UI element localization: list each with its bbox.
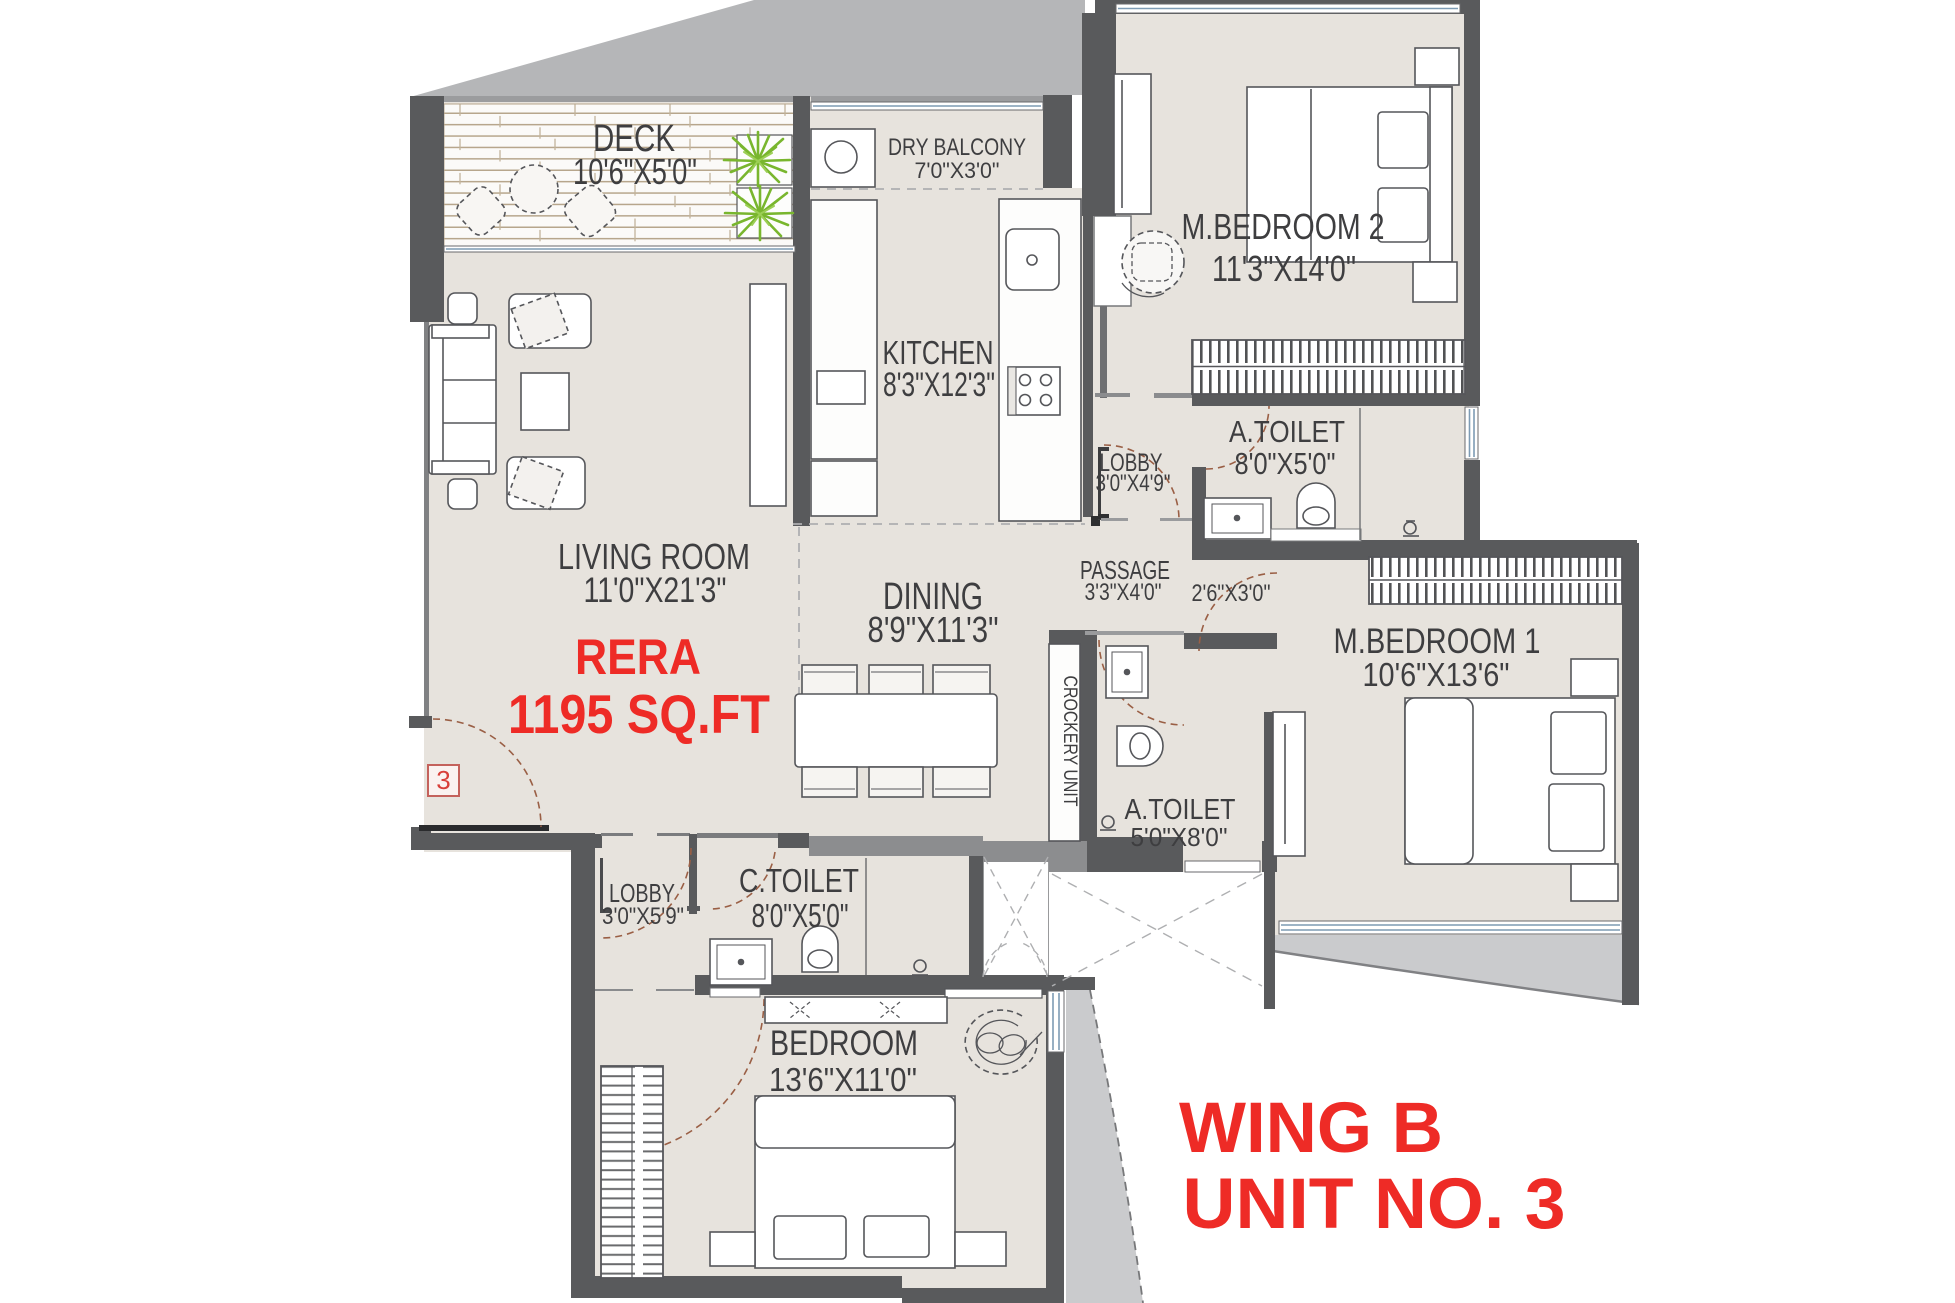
- svg-text:UNIT NO. 3: UNIT NO. 3: [1183, 1165, 1566, 1244]
- svg-text:11'3"X14'0": 11'3"X14'0": [1212, 248, 1356, 289]
- svg-text:8'9"X11'3": 8'9"X11'3": [868, 609, 999, 650]
- svg-text:8'0"X5'0": 8'0"X5'0": [1235, 446, 1336, 481]
- svg-text:3: 3: [436, 765, 450, 795]
- svg-text:8'0"X5'0": 8'0"X5'0": [752, 897, 849, 934]
- svg-text:7'0"X3'0": 7'0"X3'0": [915, 158, 1000, 183]
- svg-text:RERA: RERA: [575, 629, 701, 685]
- svg-text:DRY BALCONY: DRY BALCONY: [888, 134, 1026, 161]
- svg-text:2'6"X3'0": 2'6"X3'0": [1192, 580, 1271, 607]
- svg-text:13'6"X11'0": 13'6"X11'0": [769, 1061, 917, 1098]
- svg-text:10'6"X5'0": 10'6"X5'0": [573, 151, 697, 192]
- svg-text:5'0"X8'0": 5'0"X8'0": [1131, 822, 1228, 852]
- svg-text:CROCKERY UNIT: CROCKERY UNIT: [1059, 676, 1080, 807]
- svg-text:WING B: WING B: [1179, 1089, 1443, 1168]
- svg-text:11'0"X21'3": 11'0"X21'3": [584, 571, 727, 610]
- svg-text:10'6"X13'6": 10'6"X13'6": [1363, 656, 1510, 693]
- svg-text:3'3"X4'0": 3'3"X4'0": [1085, 579, 1162, 606]
- svg-text:8'3"X12'3": 8'3"X12'3": [883, 366, 995, 404]
- svg-text:M.BEDROOM 2: M.BEDROOM 2: [1182, 206, 1385, 247]
- svg-text:A.TOILET: A.TOILET: [1229, 414, 1345, 449]
- svg-text:BEDROOM: BEDROOM: [770, 1024, 918, 1063]
- svg-text:3'0"X5'9": 3'0"X5'9": [602, 903, 684, 930]
- svg-text:3'0"X4'9": 3'0"X4'9": [1096, 470, 1171, 497]
- svg-text:1195 SQ.FT: 1195 SQ.FT: [508, 683, 770, 745]
- svg-text:C.TOILET: C.TOILET: [739, 862, 859, 899]
